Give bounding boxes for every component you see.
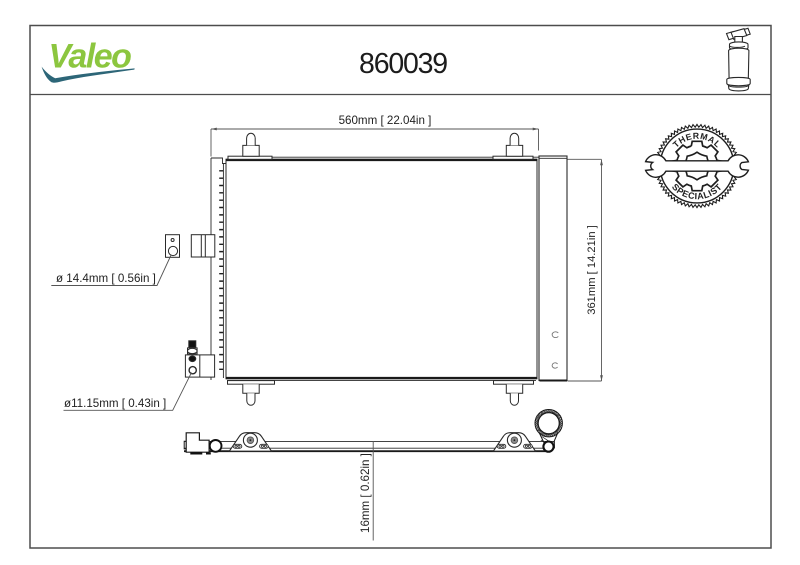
svg-text:361mm [ 14.21in ]: 361mm [ 14.21in ] <box>586 225 598 315</box>
svg-text:560mm [ 22.04in ]: 560mm [ 22.04in ] <box>339 114 432 127</box>
svg-text:ø11.15mm [ 0.43in ]: ø11.15mm [ 0.43in ] <box>64 397 166 410</box>
svg-text:16mm [ 0.62in ]: 16mm [ 0.62in ] <box>359 453 372 533</box>
svg-text:ø 14.4mm [ 0.56in ]: ø 14.4mm [ 0.56in ] <box>56 272 156 285</box>
svg-text:860039: 860039 <box>359 48 447 80</box>
svg-text:Valeo: Valeo <box>49 38 132 76</box>
